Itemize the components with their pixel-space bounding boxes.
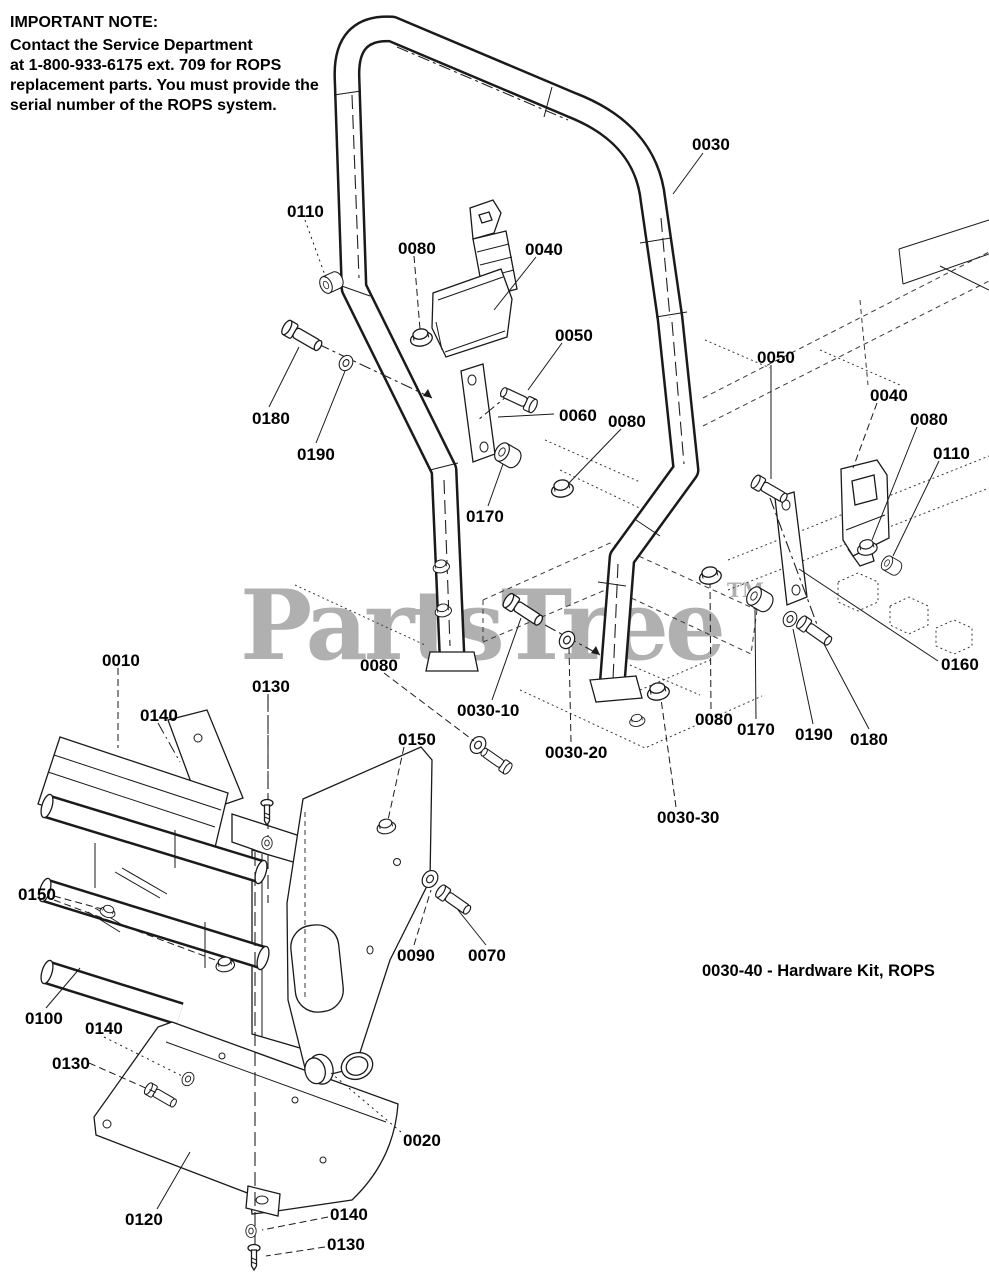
bolt-0050-right <box>749 474 789 506</box>
washer-0030-20 <box>556 629 577 652</box>
note-line: replacement parts. You must provide the <box>10 76 350 96</box>
nut-0080-center-right <box>698 565 723 586</box>
bushing-0170-right <box>744 584 777 614</box>
leader-line-0190 <box>793 629 813 724</box>
leader-line-0190 <box>316 371 345 443</box>
counterweight-assembly <box>37 710 300 1048</box>
nut-0080-top <box>409 327 434 348</box>
strap-right <box>775 492 807 605</box>
leader-line-0080 <box>414 256 420 329</box>
leader-line-0140 <box>262 1217 328 1230</box>
leader-line-0080 <box>384 673 474 741</box>
leader-line-0030-20 <box>569 648 571 742</box>
leader-line-0030 <box>673 153 703 194</box>
leader-line-0110 <box>305 220 326 278</box>
side-plate <box>287 747 432 1080</box>
leader-line-0050 <box>528 343 562 390</box>
bolt-0180-right <box>795 614 835 648</box>
leader-line-0180 <box>824 644 869 729</box>
note-line: serial number of the ROPS system. <box>10 96 350 116</box>
bolt-0030-10 <box>501 592 545 629</box>
bolt-0050-left <box>498 385 539 414</box>
leader-line-0080 <box>569 429 621 483</box>
leader-line-0170 <box>488 464 503 506</box>
washer-0140-bottom <box>246 1225 256 1238</box>
bolt-0180-left <box>280 319 325 354</box>
screw-0130-upper <box>261 800 273 826</box>
screw-seat <box>479 745 514 775</box>
nut-0030-30 <box>646 681 671 702</box>
leader-line-0180 <box>269 347 299 407</box>
bushing-0170-left <box>492 440 525 470</box>
note-line: Contact the Service Department <box>10 36 350 56</box>
leader-line-0060 <box>498 414 554 417</box>
exploded-view-canvas <box>0 0 989 1280</box>
leader-line-0030-30 <box>661 699 676 807</box>
bolt-0070 <box>434 883 474 917</box>
leader-line-0070 <box>458 910 486 945</box>
note-title: IMPORTANT NOTE: <box>10 13 350 33</box>
leader-line-0110 <box>893 461 939 556</box>
hardware-kit-note: 0030-40 - Hardware Kit, ROPS <box>702 962 935 981</box>
washer-0140-upper <box>262 837 272 850</box>
leader-line-0170 <box>755 610 756 719</box>
leader-line-0040 <box>853 403 877 468</box>
seat-belt-retractor-left <box>432 200 517 357</box>
important-note: IMPORTANT NOTE: Contact the Service Depa… <box>10 13 350 116</box>
parts-diagram-page: { "note": { "title": "IMPORTANT NOTE:", … <box>0 0 989 1280</box>
strap-left <box>461 364 495 462</box>
leader-line-0080 <box>710 584 711 709</box>
washer-0190-left <box>336 353 355 373</box>
note-line: at 1-800-933-6175 ext. 709 for ROPS <box>10 56 350 76</box>
leader-line-0130 <box>266 1247 325 1256</box>
leader-line-0160 <box>799 569 938 661</box>
bushing-0110-right <box>879 554 904 577</box>
leader-line-0030-10 <box>492 618 521 700</box>
screw-0130-bottom <box>248 1245 260 1271</box>
nut-small-center <box>628 713 646 728</box>
